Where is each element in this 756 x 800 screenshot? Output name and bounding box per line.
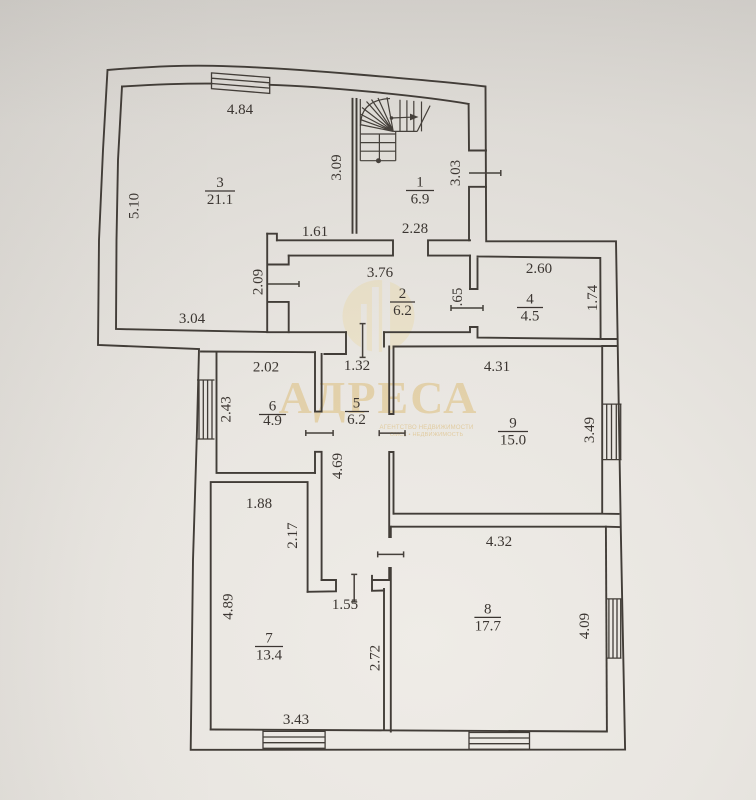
svg-text:8: 8	[484, 601, 492, 617]
svg-text:6.2: 6.2	[347, 412, 366, 428]
svg-text:3.04: 3.04	[179, 311, 206, 327]
svg-text:4.84: 4.84	[227, 102, 254, 118]
svg-text:7: 7	[265, 631, 273, 647]
svg-text:5.10: 5.10	[127, 193, 143, 219]
svg-text:9: 9	[509, 416, 517, 432]
svg-text:6.9: 6.9	[411, 192, 430, 208]
svg-text:1: 1	[416, 175, 424, 191]
svg-text:21.1: 21.1	[207, 192, 233, 208]
svg-text:4.32: 4.32	[486, 534, 512, 550]
svg-text:2.43: 2.43	[218, 396, 234, 422]
svg-text:2.02: 2.02	[253, 360, 279, 376]
svg-text:2.17: 2.17	[285, 522, 301, 549]
svg-text:1.61: 1.61	[302, 224, 328, 240]
svg-text:АГЕНТСТВО НЕДВИЖИМОСТИ: АГЕНТСТВО НЕДВИЖИМОСТИ	[380, 425, 474, 431]
svg-text:2.28: 2.28	[402, 221, 428, 237]
svg-text:3.09: 3.09	[329, 154, 345, 180]
svg-text:3: 3	[216, 175, 224, 191]
svg-text:4.31: 4.31	[484, 359, 510, 375]
svg-text:17.7: 17.7	[475, 618, 502, 634]
svg-text:1.55: 1.55	[332, 597, 358, 613]
svg-text:1.88: 1.88	[246, 496, 272, 512]
svg-text:1.74: 1.74	[585, 284, 601, 311]
svg-text:5: 5	[353, 396, 361, 412]
svg-text:2: 2	[399, 286, 407, 302]
svg-text:4.5: 4.5	[521, 309, 540, 325]
svg-text:4.9: 4.9	[263, 413, 282, 429]
svg-text:3.49: 3.49	[582, 417, 598, 443]
svg-text:13.4: 13.4	[256, 648, 283, 664]
svg-text:АДРЕСА: АДРЕСА	[279, 372, 479, 423]
svg-text:2.72: 2.72	[368, 645, 384, 671]
svg-text:4.09: 4.09	[577, 613, 593, 639]
svg-text:15.0: 15.0	[500, 433, 526, 449]
svg-text:4: 4	[526, 292, 534, 308]
svg-text:4.89: 4.89	[220, 593, 236, 619]
svg-text:4.69: 4.69	[330, 453, 346, 479]
svg-text:1.32: 1.32	[344, 358, 370, 374]
svg-text:3.43: 3.43	[283, 712, 309, 728]
svg-text:3.03: 3.03	[448, 160, 464, 186]
svg-text:2.09: 2.09	[251, 269, 267, 295]
svg-text:6.2: 6.2	[393, 303, 412, 319]
svg-text:3.76: 3.76	[367, 265, 394, 281]
svg-text:2.60: 2.60	[526, 261, 552, 277]
svg-text:.65: .65	[450, 288, 466, 307]
